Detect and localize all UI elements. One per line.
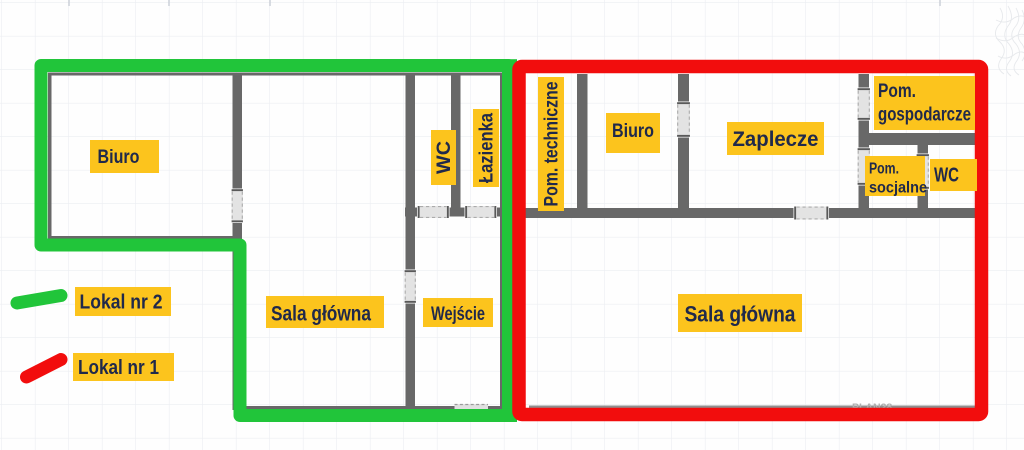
svg-text:WC: WC — [934, 165, 959, 187]
svg-text:Zaplecze: Zaplecze — [733, 128, 819, 151]
svg-text:Sala główna: Sala główna — [685, 302, 797, 327]
svg-text:Biuro: Biuro — [98, 147, 140, 168]
svg-text:Pom. techniczne: Pom. techniczne — [542, 82, 563, 207]
svg-text:Wejście: Wejście — [431, 304, 485, 325]
svg-text:Łazienka: Łazienka — [477, 113, 498, 183]
svg-text:socjalne: socjalne — [869, 180, 927, 197]
svg-text:Lokal nr 1: Lokal nr 1 — [78, 357, 159, 379]
svg-text:gospodarcze: gospodarcze — [878, 105, 971, 126]
svg-text:Biuro: Biuro — [612, 121, 654, 142]
svg-text:Sala główna: Sala główna — [271, 303, 371, 326]
svg-text:Pom.: Pom. — [878, 81, 916, 102]
svg-text:Pom.: Pom. — [869, 161, 899, 178]
svg-text:Lokal nr 2: Lokal nr 2 — [80, 292, 163, 314]
svg-text:WC: WC — [434, 141, 455, 174]
